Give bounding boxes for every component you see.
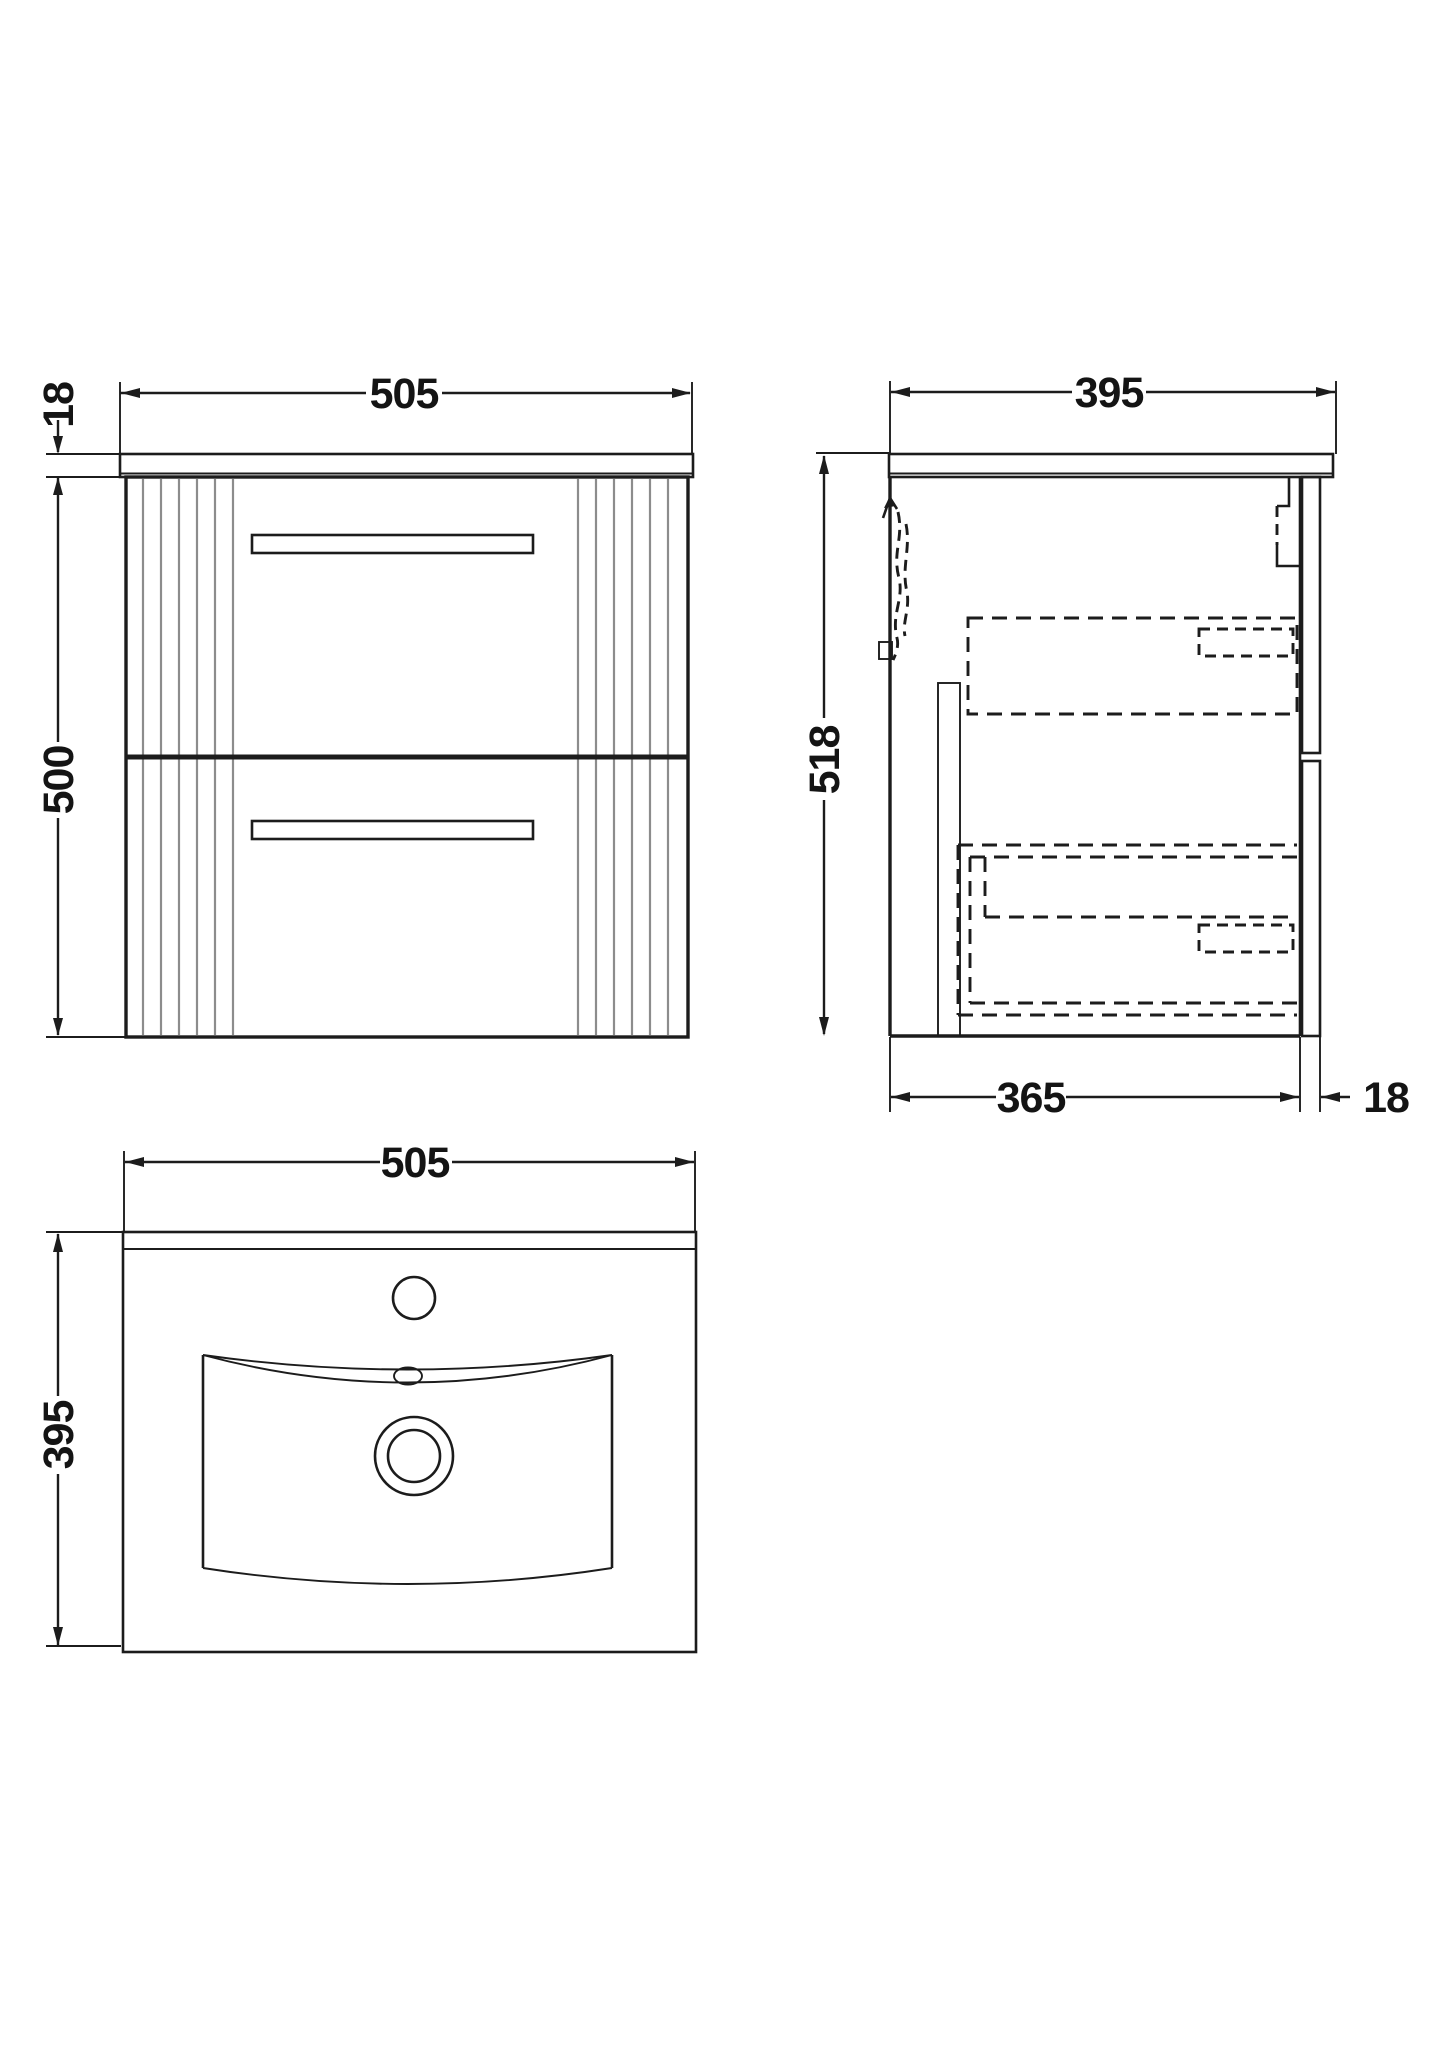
faucet-hole [393, 1277, 435, 1319]
front-width-label: 505 [370, 370, 439, 418]
front-view: 505 18 500 [35, 370, 693, 1037]
wall-bracket-symbol [879, 496, 908, 660]
side-height-label: 518 [801, 726, 849, 795]
front-width-dimension: 505 [120, 370, 692, 454]
side-depth-dimension: 395 [890, 369, 1336, 454]
basin-depth-label: 395 [35, 1401, 83, 1470]
side-front-thickness-dimension: 18 [1320, 1037, 1409, 1122]
front-worktop-thickness-label: 18 [35, 382, 83, 428]
side-upper-drawer-front [1302, 477, 1320, 753]
drain-hole [375, 1417, 453, 1495]
side-view: 395 518 [801, 369, 1409, 1122]
lower-drawer-handle [252, 821, 533, 839]
side-lower-drawer-front [1302, 761, 1320, 1036]
basin-recess-step [1277, 477, 1299, 566]
basin-width-label: 505 [381, 1139, 450, 1187]
vanity-drawing-svg: 505 18 500 [0, 0, 1445, 2045]
side-height-dimension: 518 [801, 453, 889, 1036]
upper-drawer-hidden-outline [968, 618, 1297, 714]
side-depth-label: 395 [1075, 369, 1144, 417]
front-worktop-thickness-dimension: 18 [35, 382, 122, 495]
basin-depth-dimension: 395 [35, 1232, 123, 1646]
side-body-depth-dimension: 365 [890, 1037, 1300, 1122]
upper-drawer-handle [252, 535, 533, 553]
basin-bowl [203, 1355, 612, 1584]
basin-width-dimension: 505 [124, 1139, 695, 1232]
basin-outer-rim [123, 1232, 696, 1652]
front-height-dimension: 500 [35, 478, 126, 1037]
side-body-depth-label: 365 [997, 1074, 1066, 1122]
lower-drawer-hidden-outline [958, 845, 1297, 1015]
basin-plan-view: 505 395 [35, 1139, 696, 1652]
side-front-thickness-label: 18 [1363, 1074, 1409, 1122]
front-height-label: 500 [35, 746, 83, 815]
technical-drawing-page: 505 18 500 [0, 0, 1445, 2045]
